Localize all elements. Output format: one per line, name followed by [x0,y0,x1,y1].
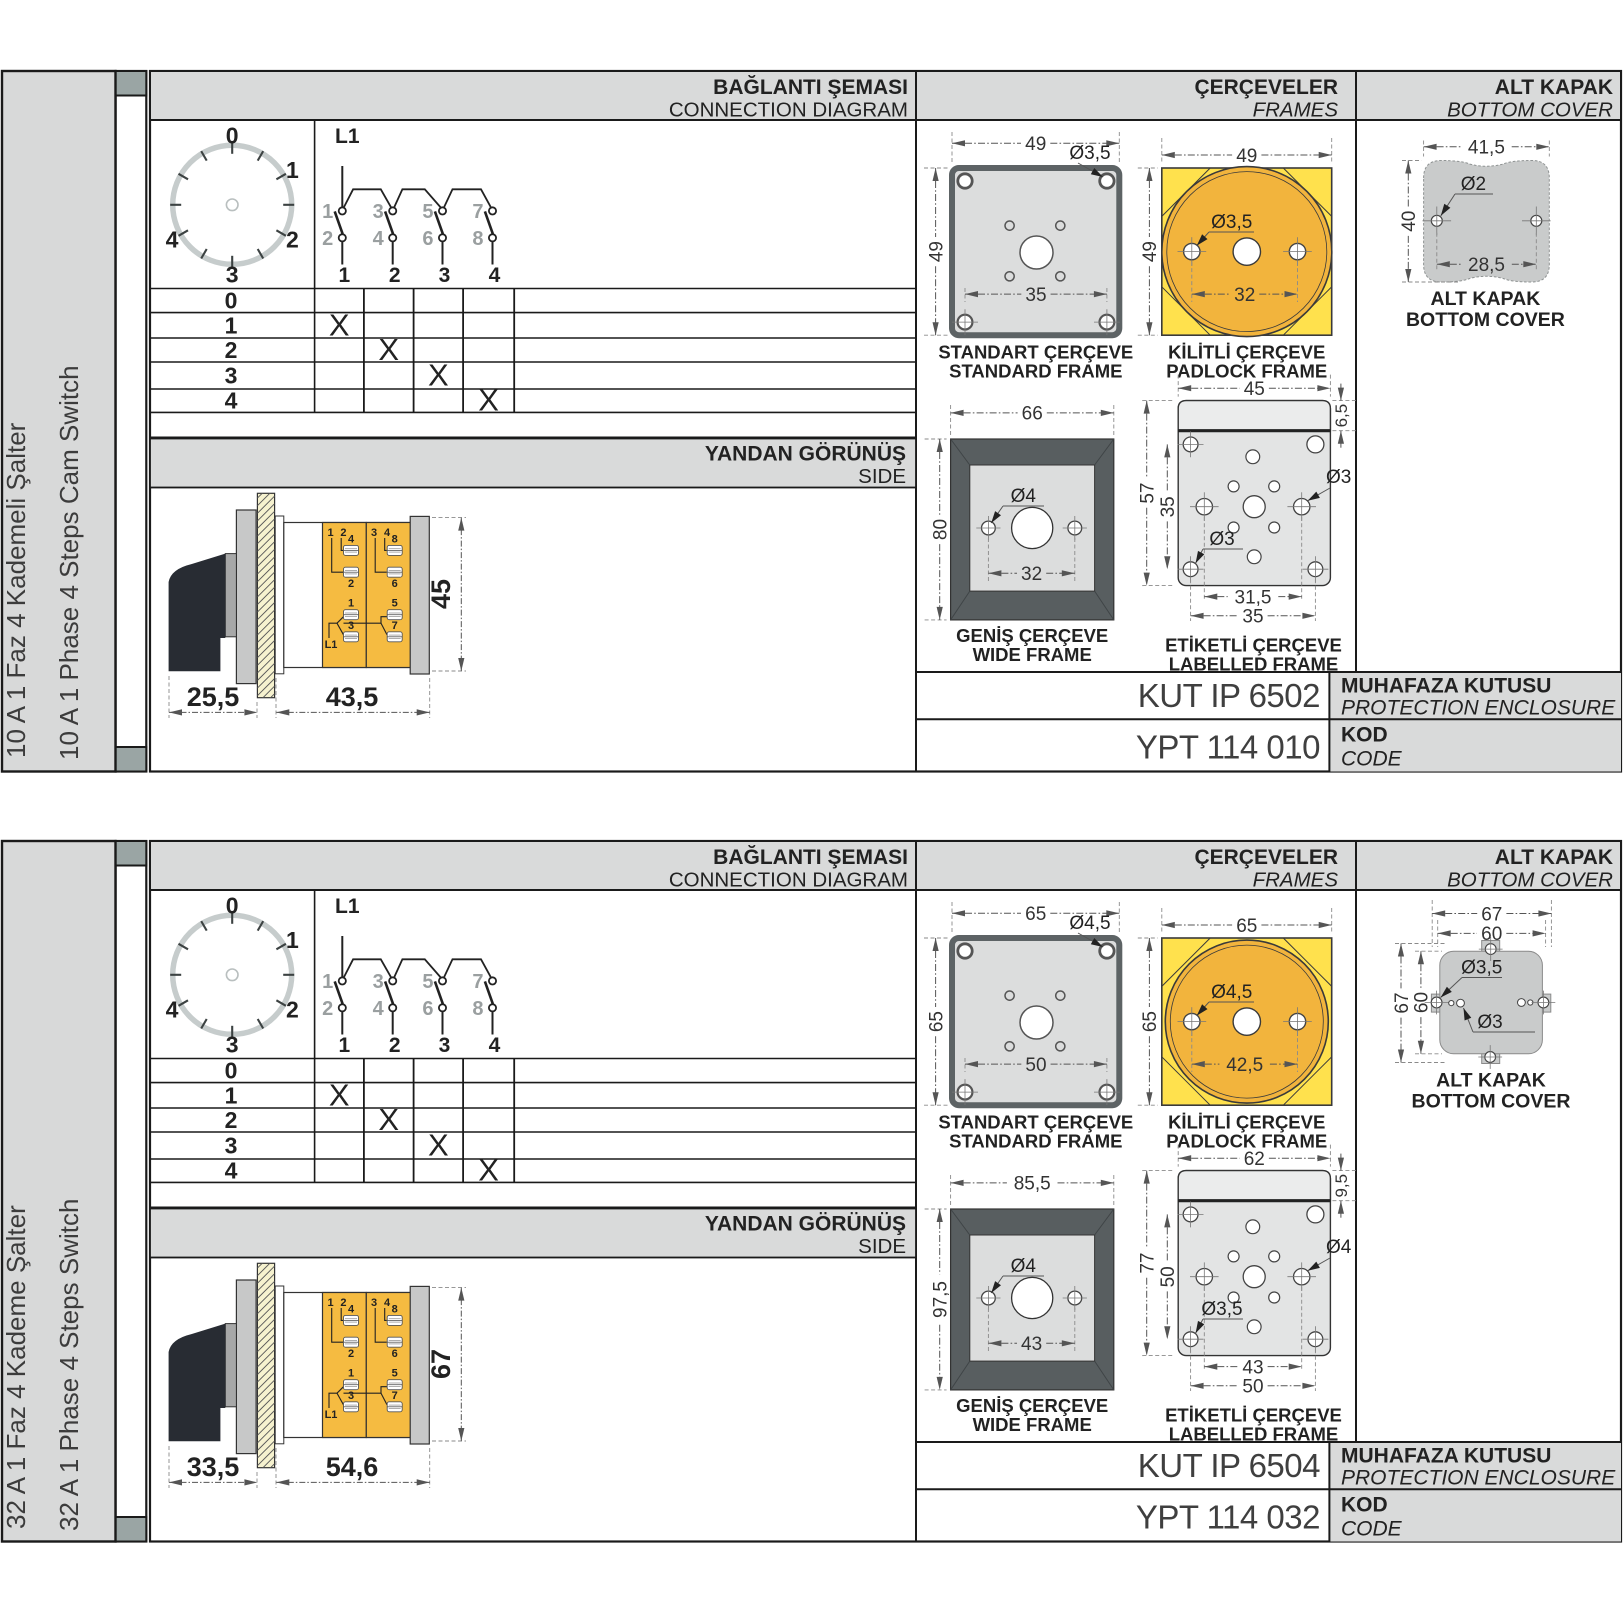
svg-text:49: 49 [1236,146,1257,167]
svg-text:0: 0 [225,1058,238,1084]
svg-text:2: 2 [340,527,346,539]
svg-text:1: 1 [322,201,333,223]
svg-text:ALT KAPAK: ALT KAPAK [1436,1070,1546,1092]
svg-text:Ø4: Ø4 [1011,486,1037,507]
svg-text:28,5: 28,5 [1468,255,1505,276]
svg-text:32: 32 [1021,564,1042,585]
svg-text:2: 2 [348,1348,354,1360]
svg-text:2: 2 [322,228,333,250]
svg-text:Ø3,5: Ø3,5 [1069,143,1110,164]
svg-text:49: 49 [1140,241,1161,262]
svg-text:4: 4 [373,998,385,1020]
svg-text:8: 8 [392,533,398,545]
svg-text:32: 32 [1234,285,1255,306]
svg-text:SIDE: SIDE [858,1235,906,1258]
svg-text:0: 0 [225,288,238,314]
svg-text:4: 4 [348,1303,355,1315]
svg-text:ALT KAPAK: ALT KAPAK [1495,846,1613,869]
svg-text:BOTTOM COVER: BOTTOM COVER [1412,1091,1571,1113]
svg-text:85,5: 85,5 [1014,1174,1051,1195]
svg-text:77: 77 [1138,1253,1159,1274]
svg-text:4: 4 [489,264,501,287]
svg-text:ALT KAPAK: ALT KAPAK [1431,288,1541,310]
svg-text:BAĞLANTI ŞEMASI: BAĞLANTI ŞEMASI [713,845,908,869]
svg-text:3: 3 [348,1390,354,1402]
svg-text:PROTECTION ENCLOSURE: PROTECTION ENCLOSURE [1341,1467,1616,1490]
svg-text:Ø4: Ø4 [1011,1256,1037,1277]
svg-text:2: 2 [286,227,299,253]
svg-text:4: 4 [348,533,355,545]
svg-text:60: 60 [1481,924,1502,945]
svg-text:62: 62 [1244,1149,1265,1170]
svg-text:KUT IP 6502: KUT IP 6502 [1138,677,1320,714]
svg-text:PROTECTION ENCLOSURE: PROTECTION ENCLOSURE [1341,697,1616,720]
svg-text:49: 49 [1025,134,1046,155]
svg-text:4: 4 [225,388,238,414]
svg-text:L1: L1 [325,1409,338,1421]
svg-text:X: X [378,332,399,367]
svg-text:Ø4,5: Ø4,5 [1211,982,1252,1003]
svg-text:KOD: KOD [1341,723,1388,746]
svg-text:X: X [428,1128,449,1163]
svg-text:CODE: CODE [1341,747,1403,770]
svg-text:8: 8 [392,1303,398,1315]
svg-text:1: 1 [348,1368,354,1380]
svg-text:3: 3 [439,1034,451,1057]
svg-text:65: 65 [1236,916,1257,937]
svg-text:35: 35 [1242,607,1263,628]
svg-text:97,5: 97,5 [931,1281,952,1318]
svg-text:1: 1 [327,527,333,539]
svg-text:BOTTOM COVER: BOTTOM COVER [1447,99,1613,122]
svg-text:3: 3 [226,1031,239,1057]
svg-text:3: 3 [371,527,377,539]
svg-text:0: 0 [226,892,239,918]
svg-text:42,5: 42,5 [1226,1055,1263,1076]
svg-text:50: 50 [1158,1266,1179,1287]
svg-text:3: 3 [226,261,239,287]
svg-text:3: 3 [225,1133,238,1159]
svg-text:65: 65 [1140,1011,1161,1032]
svg-text:CODE: CODE [1341,1517,1403,1540]
svg-text:6: 6 [422,998,433,1020]
svg-text:3: 3 [373,971,384,993]
svg-text:66: 66 [1022,404,1043,425]
svg-text:Ø2: Ø2 [1461,174,1486,195]
svg-text:1: 1 [286,927,299,953]
svg-text:4: 4 [166,997,179,1023]
svg-text:WIDE FRAME: WIDE FRAME [973,644,1092,665]
svg-text:49: 49 [926,241,947,262]
svg-text:80: 80 [931,519,952,540]
svg-text:MUHAFAZA KUTUSU: MUHAFAZA KUTUSU [1341,1445,1551,1468]
svg-text:25,5: 25,5 [187,682,240,712]
svg-text:8: 8 [472,998,483,1020]
svg-text:ÇERÇEVELER: ÇERÇEVELER [1194,846,1338,869]
svg-text:7: 7 [472,971,483,993]
svg-text:3: 3 [439,264,451,287]
svg-text:Ø3,5: Ø3,5 [1201,1299,1242,1320]
svg-text:L1: L1 [325,639,338,651]
svg-text:7: 7 [392,1390,398,1402]
svg-text:4: 4 [489,1034,501,1057]
svg-text:3: 3 [373,201,384,223]
svg-text:X: X [329,307,350,342]
svg-text:WIDE FRAME: WIDE FRAME [973,1414,1092,1435]
svg-text:4: 4 [166,227,179,253]
svg-text:50: 50 [1242,1377,1263,1398]
svg-text:1: 1 [322,971,333,993]
svg-text:STANDART ÇERÇEVE: STANDART ÇERÇEVE [938,1112,1133,1133]
svg-text:Ø4,5: Ø4,5 [1069,913,1110,934]
svg-text:Ø3,5: Ø3,5 [1211,212,1252,233]
svg-text:1: 1 [348,598,354,610]
svg-text:FRAMES: FRAMES [1253,99,1339,122]
svg-text:57: 57 [1138,483,1159,504]
svg-text:10 A 1 Faz 4 Kademeli Şalter: 10 A 1 Faz 4 Kademeli Şalter [1,422,31,758]
svg-text:67: 67 [1481,904,1502,925]
svg-text:STANDARD FRAME: STANDARD FRAME [949,1131,1122,1152]
svg-text:GENİŞ ÇERÇEVE: GENİŞ ÇERÇEVE [956,1395,1108,1416]
svg-text:45: 45 [426,579,456,609]
svg-text:L1: L1 [335,125,360,148]
svg-text:4: 4 [373,228,385,250]
svg-text:CONNECTION DIAGRAM: CONNECTION DIAGRAM [669,99,908,122]
svg-text:4: 4 [225,1158,238,1184]
svg-text:33,5: 33,5 [187,1452,240,1482]
svg-text:6: 6 [422,228,433,250]
svg-text:X: X [378,1102,399,1137]
svg-text:BAĞLANTI ŞEMASI: BAĞLANTI ŞEMASI [713,75,908,99]
svg-text:43: 43 [1242,1357,1263,1378]
svg-text:BOTTOM COVER: BOTTOM COVER [1406,309,1565,331]
svg-text:43: 43 [1021,1334,1042,1355]
svg-text:2: 2 [340,1297,346,1309]
svg-text:45: 45 [1244,379,1265,400]
svg-text:KİLİTLİ ÇERÇEVE: KİLİTLİ ÇERÇEVE [1168,342,1325,363]
svg-text:6: 6 [392,578,398,590]
svg-text:32 A 1 Phase 4 Steps Switch: 32 A 1 Phase 4 Steps Switch [54,1199,84,1531]
svg-text:5: 5 [392,598,398,610]
svg-text:31,5: 31,5 [1235,587,1272,608]
svg-text:0: 0 [226,122,239,148]
svg-text:Ø4: Ø4 [1326,1237,1352,1258]
svg-text:1: 1 [338,264,350,287]
svg-text:50: 50 [1025,1055,1046,1076]
svg-text:35: 35 [1025,285,1046,306]
svg-text:41,5: 41,5 [1468,138,1505,159]
svg-text:Ø3: Ø3 [1326,467,1351,488]
svg-text:2: 2 [322,998,333,1020]
svg-text:STANDARD FRAME: STANDARD FRAME [949,361,1122,382]
svg-text:X: X [478,1153,499,1188]
svg-text:67: 67 [1392,992,1413,1013]
svg-text:2: 2 [225,1107,238,1133]
svg-text:L1: L1 [335,895,360,918]
svg-text:ETİKETLİ ÇERÇEVE: ETİKETLİ ÇERÇEVE [1165,1405,1342,1426]
svg-text:2: 2 [348,578,354,590]
svg-text:X: X [329,1077,350,1112]
svg-text:YPT 114 032: YPT 114 032 [1136,1498,1320,1535]
svg-text:8: 8 [472,228,483,250]
svg-text:4: 4 [384,1297,391,1309]
svg-text:1: 1 [225,312,238,338]
svg-text:67: 67 [426,1349,456,1379]
svg-text:35: 35 [1158,496,1179,517]
svg-text:KİLİTLİ ÇERÇEVE: KİLİTLİ ÇERÇEVE [1168,1112,1325,1133]
svg-text:7: 7 [392,620,398,632]
svg-text:STANDART ÇERÇEVE: STANDART ÇERÇEVE [938,342,1133,363]
svg-text:1: 1 [286,157,299,183]
svg-text:2: 2 [286,997,299,1023]
svg-text:54,6: 54,6 [326,1452,379,1482]
svg-text:GENİŞ ÇERÇEVE: GENİŞ ÇERÇEVE [956,625,1108,646]
svg-text:KUT IP 6504: KUT IP 6504 [1138,1447,1320,1484]
svg-text:BOTTOM COVER: BOTTOM COVER [1447,869,1613,892]
svg-text:7: 7 [472,201,483,223]
svg-text:SIDE: SIDE [858,465,906,488]
svg-text:YPT 114 010: YPT 114 010 [1136,728,1320,765]
svg-text:3: 3 [348,620,354,632]
svg-text:5: 5 [392,1368,398,1380]
svg-text:YANDAN GÖRÜNÜŞ: YANDAN GÖRÜNÜŞ [705,1213,906,1236]
svg-text:2: 2 [389,1034,401,1057]
svg-text:1: 1 [327,1297,333,1309]
svg-text:4: 4 [384,527,391,539]
svg-text:Ø3: Ø3 [1209,529,1234,550]
svg-text:40: 40 [1399,211,1420,232]
svg-text:ALT KAPAK: ALT KAPAK [1495,76,1613,99]
svg-text:6: 6 [392,1348,398,1360]
svg-text:65: 65 [1025,904,1046,925]
svg-text:9,5: 9,5 [1332,1174,1351,1198]
svg-text:2: 2 [389,264,401,287]
svg-text:ÇERÇEVELER: ÇERÇEVELER [1194,76,1338,99]
svg-text:Ø3: Ø3 [1477,1012,1502,1033]
svg-text:X: X [478,383,499,418]
svg-text:MUHAFAZA KUTUSU: MUHAFAZA KUTUSU [1341,675,1551,698]
svg-text:6,5: 6,5 [1332,404,1351,428]
svg-text:X: X [428,358,449,393]
svg-text:5: 5 [422,971,433,993]
svg-text:32 A 1 Faz 4 Kademe Şalter: 32 A 1 Faz 4 Kademe Şalter [1,1205,31,1529]
svg-text:43,5: 43,5 [326,682,379,712]
svg-text:1: 1 [225,1082,238,1108]
svg-text:60: 60 [1412,992,1433,1013]
svg-text:3: 3 [225,363,238,389]
svg-text:3: 3 [371,1297,377,1309]
svg-text:FRAMES: FRAMES [1253,869,1339,892]
svg-text:ETİKETLİ ÇERÇEVE: ETİKETLİ ÇERÇEVE [1165,635,1342,656]
svg-text:CONNECTION DIAGRAM: CONNECTION DIAGRAM [669,869,908,892]
svg-text:Ø3,5: Ø3,5 [1461,958,1502,979]
svg-text:YANDAN GÖRÜNÜŞ: YANDAN GÖRÜNÜŞ [705,443,906,466]
svg-text:5: 5 [422,201,433,223]
svg-text:65: 65 [926,1011,947,1032]
svg-text:2: 2 [225,337,238,363]
svg-text:10 A 1 Phase 4 Steps Cam Switc: 10 A 1 Phase 4 Steps Cam Switch [54,365,84,760]
svg-text:1: 1 [338,1034,350,1057]
svg-text:KOD: KOD [1341,1493,1388,1516]
